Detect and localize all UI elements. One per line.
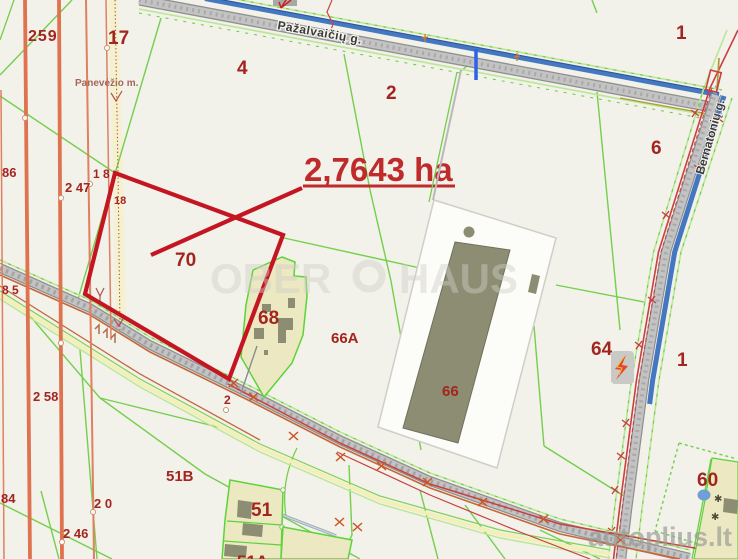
svg-text:2 58: 2 58 bbox=[33, 389, 58, 404]
svg-text:259: 259 bbox=[28, 28, 58, 45]
svg-text:autoplius.lt: autoplius.lt bbox=[588, 522, 732, 552]
svg-text:64: 64 bbox=[591, 339, 613, 360]
svg-text:17: 17 bbox=[108, 28, 129, 49]
svg-text:2 0: 2 0 bbox=[94, 496, 112, 511]
svg-text:2: 2 bbox=[224, 393, 231, 407]
svg-text:86: 86 bbox=[2, 165, 16, 180]
svg-text:1: 1 bbox=[677, 350, 688, 371]
svg-text:6: 6 bbox=[651, 138, 662, 159]
svg-text:51: 51 bbox=[251, 500, 273, 521]
svg-text:18: 18 bbox=[114, 195, 126, 207]
svg-text:68: 68 bbox=[258, 308, 279, 329]
svg-text:51B: 51B bbox=[166, 468, 194, 485]
svg-text:51A: 51A bbox=[237, 552, 268, 559]
svg-text:60: 60 bbox=[697, 470, 718, 491]
svg-text:HAUS: HAUS bbox=[399, 255, 518, 302]
svg-text:Panevėžio m.: Panevėžio m. bbox=[75, 78, 139, 89]
svg-text:4: 4 bbox=[237, 58, 248, 79]
svg-text:70: 70 bbox=[175, 250, 196, 271]
svg-text:1 8: 1 8 bbox=[93, 167, 110, 181]
svg-text:2,7643 ha: 2,7643 ha bbox=[304, 151, 453, 188]
svg-text:2: 2 bbox=[386, 83, 397, 104]
svg-text:1: 1 bbox=[676, 23, 687, 44]
svg-text:66: 66 bbox=[442, 383, 459, 400]
svg-text:66A: 66A bbox=[331, 330, 359, 347]
svg-text:84: 84 bbox=[1, 491, 16, 506]
svg-text:OBER: OBER bbox=[210, 255, 331, 302]
svg-text:2 46: 2 46 bbox=[63, 526, 88, 541]
svg-text:✱: ✱ bbox=[714, 494, 722, 505]
svg-text:2 47: 2 47 bbox=[65, 180, 90, 195]
svg-text:8 5: 8 5 bbox=[2, 283, 19, 297]
